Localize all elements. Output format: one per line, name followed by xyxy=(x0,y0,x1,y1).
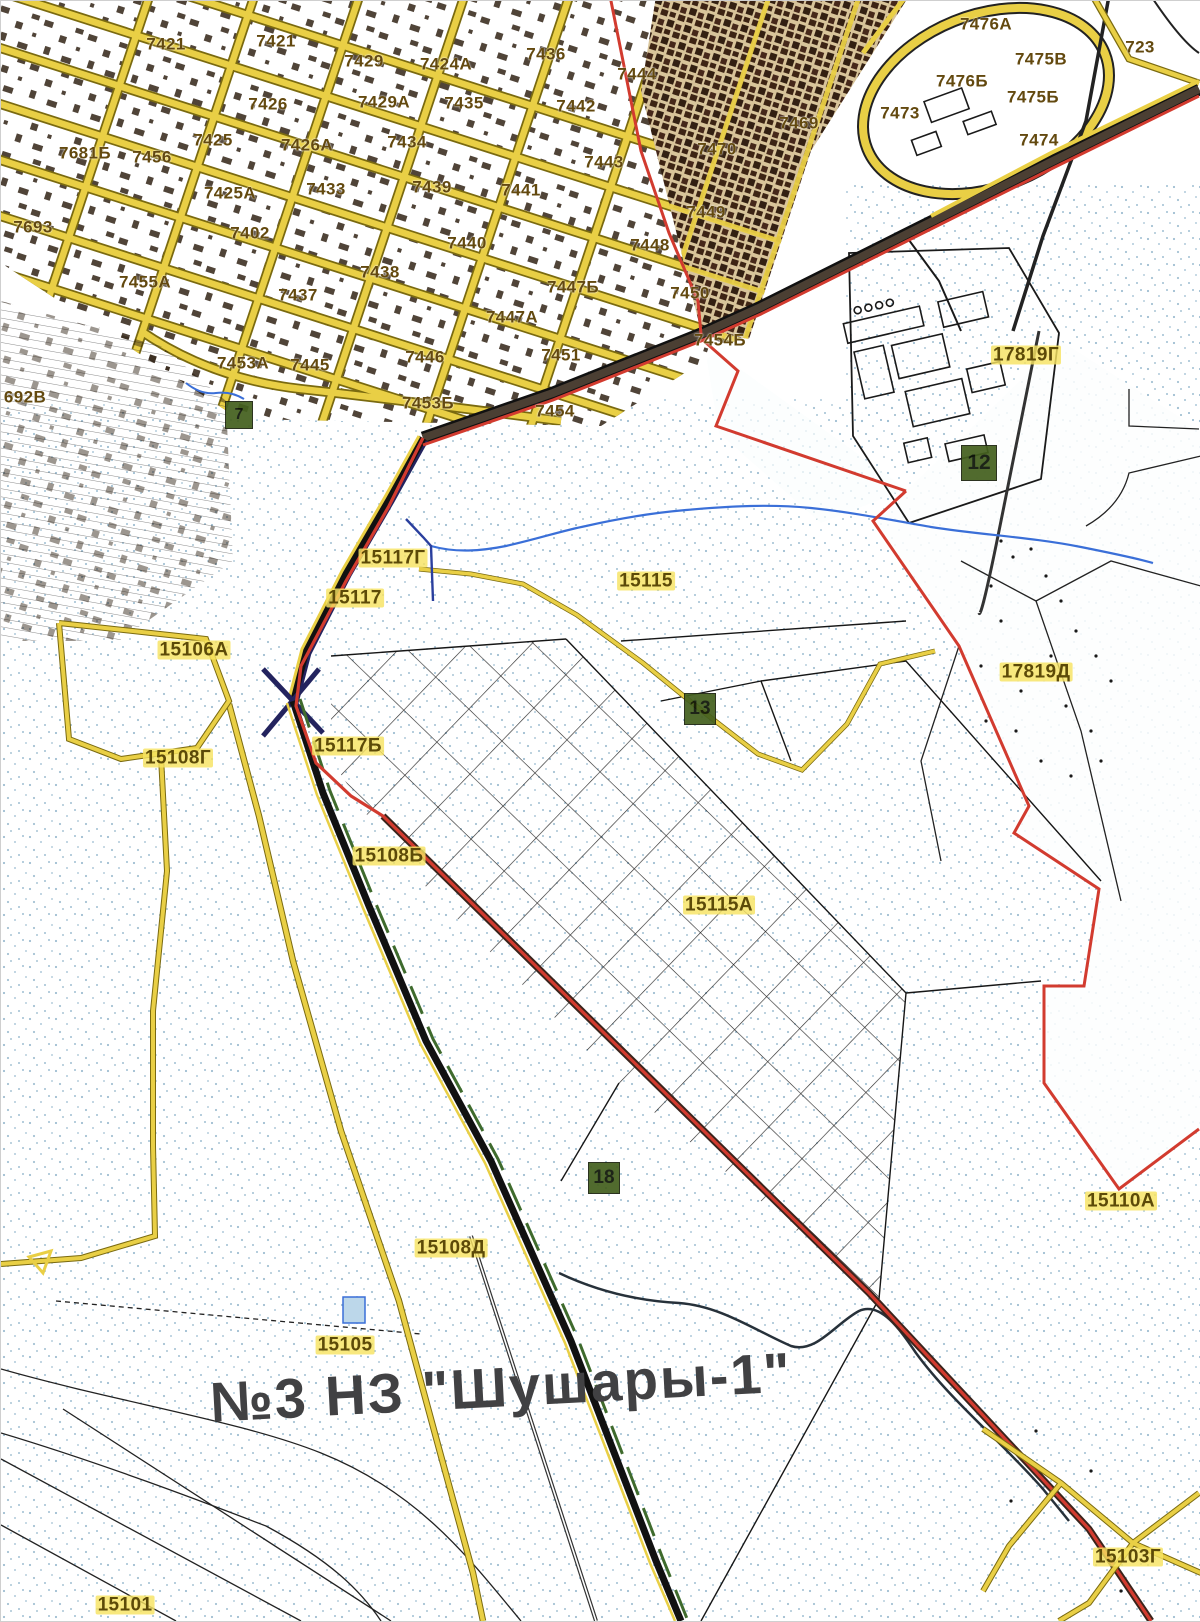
map-sheet: 7421742174297424А7436744474267429А743574… xyxy=(0,0,1200,1622)
